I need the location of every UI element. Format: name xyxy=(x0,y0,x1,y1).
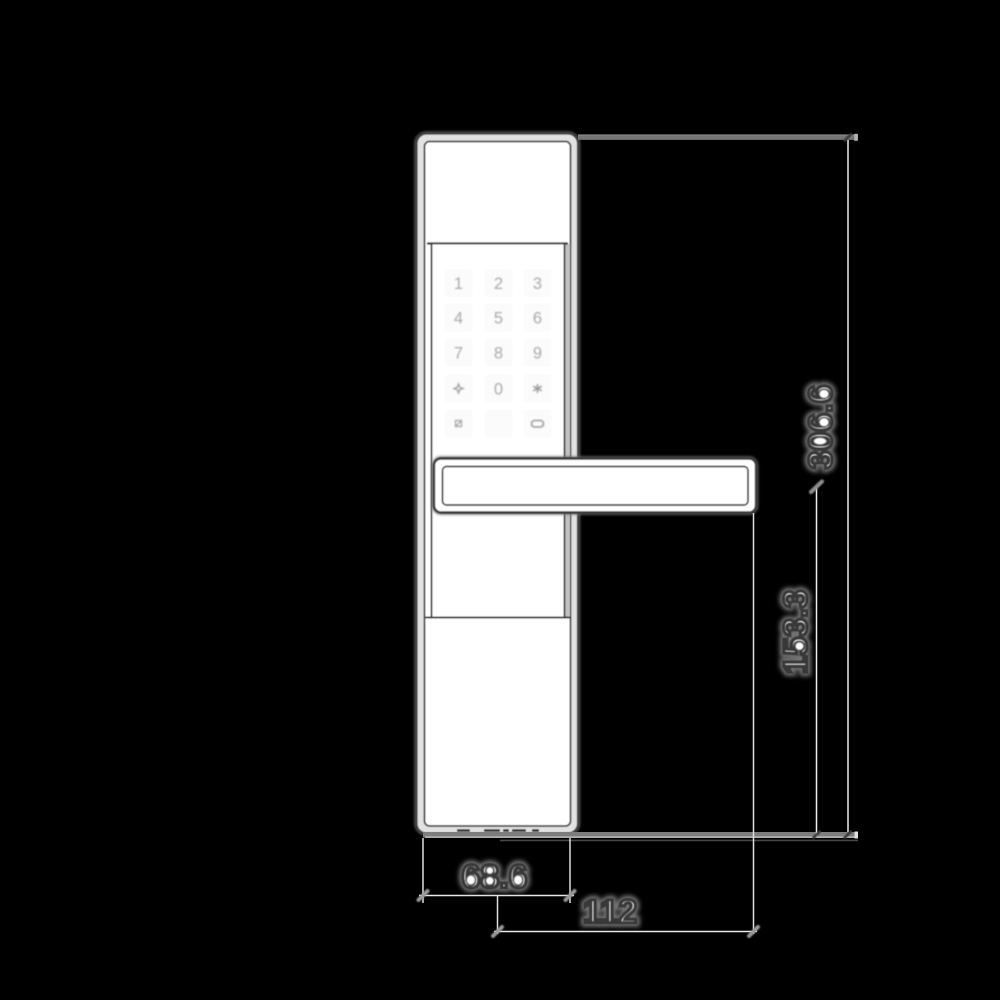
svg-text:4: 4 xyxy=(454,310,463,328)
svg-text:6: 6 xyxy=(533,310,542,328)
svg-text:1: 1 xyxy=(454,275,463,293)
svg-text:5: 5 xyxy=(494,310,503,328)
svg-text:7: 7 xyxy=(454,345,463,363)
svg-text:3: 3 xyxy=(533,275,542,293)
svg-text:2: 2 xyxy=(494,275,503,293)
svg-text:9: 9 xyxy=(533,345,542,363)
svg-text:112: 112 xyxy=(583,893,638,931)
svg-text:153.3: 153.3 xyxy=(777,589,815,674)
svg-text:0: 0 xyxy=(494,381,503,399)
svg-text:8: 8 xyxy=(494,345,503,363)
svg-text:306.6: 306.6 xyxy=(802,384,840,469)
